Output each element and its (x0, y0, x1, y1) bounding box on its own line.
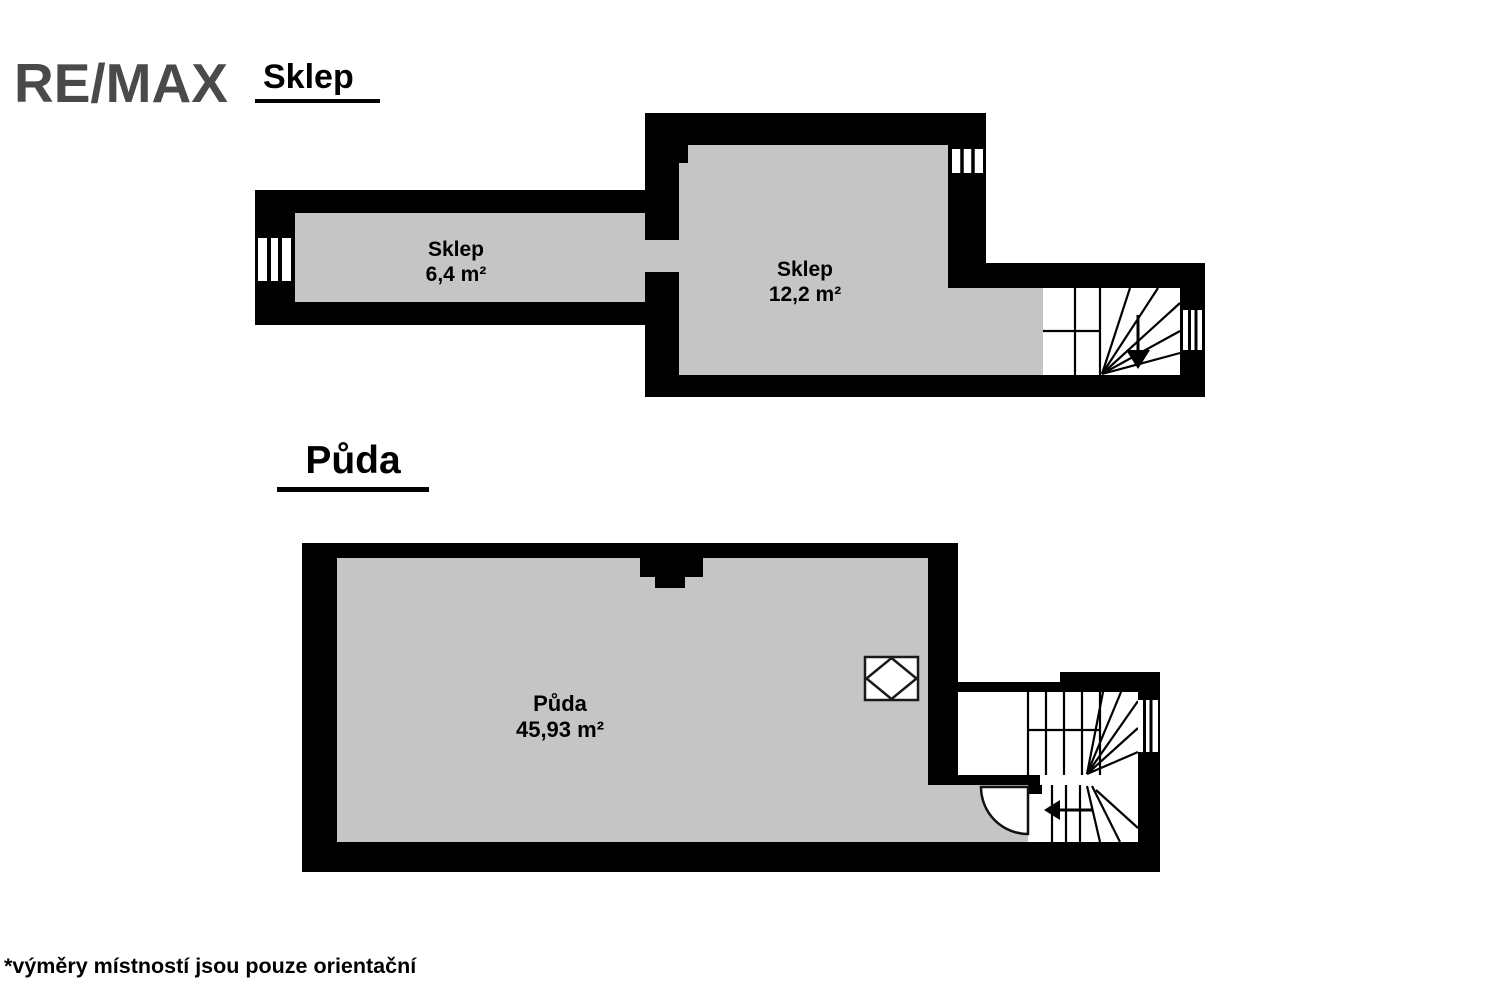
window-icon (1183, 310, 1202, 350)
skylight-icon (865, 657, 918, 700)
floorplan-puda (302, 543, 1160, 872)
floor-title-puda: Půda (277, 438, 429, 492)
room-area: 6,4 m² (356, 262, 556, 287)
room-name: Sklep (356, 237, 556, 262)
remax-logo: RE/MAX (14, 56, 228, 111)
window-icon (1138, 700, 1158, 752)
floorplan-canvas (0, 0, 1500, 1000)
stairs-icon (1043, 288, 1180, 375)
door-post (1028, 785, 1042, 794)
room-area: 45,93 m² (460, 717, 660, 743)
floorplan-sheet: RE/MAX Sklep Půda Sklep 6,4 m² Sklep 12,… (0, 0, 1500, 1000)
stair-separator-wall (955, 775, 1040, 785)
window-icon (952, 149, 983, 173)
floor-title-sklep: Sklep (255, 58, 380, 103)
room-name: Půda (460, 691, 660, 717)
room-label-sklep-small: Sklep 6,4 m² (356, 237, 556, 287)
room-name: Sklep (705, 257, 905, 282)
room-area: 12,2 m² (705, 282, 905, 307)
room-label-sklep-large: Sklep 12,2 m² (705, 257, 905, 307)
footnote: *výměry místností jsou pouze orientační (4, 954, 416, 979)
window-icon (258, 238, 291, 281)
room-label-puda: Půda 45,93 m² (460, 691, 660, 743)
